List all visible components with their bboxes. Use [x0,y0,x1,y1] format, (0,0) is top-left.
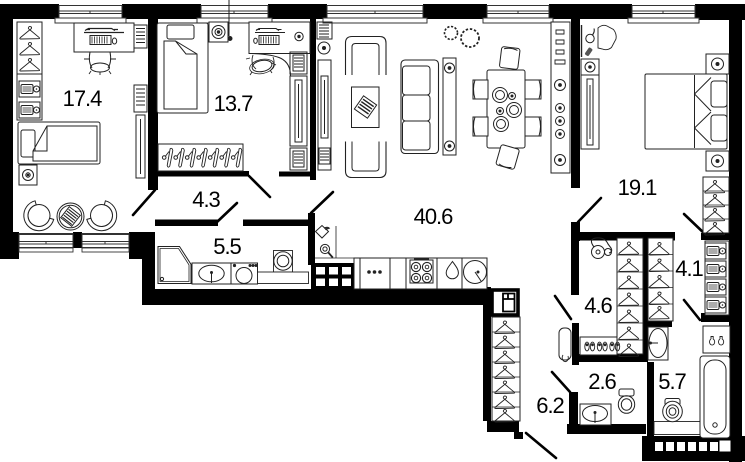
svg-text:4.3: 4.3 [192,187,220,212]
svg-text:17.4: 17.4 [63,86,103,111]
svg-text:40.6: 40.6 [414,204,454,229]
svg-text:5.5: 5.5 [213,234,241,259]
svg-text:2.6: 2.6 [588,369,616,394]
svg-text:6.2: 6.2 [536,393,564,418]
svg-text:13.7: 13.7 [214,91,254,116]
svg-text:19.1: 19.1 [618,175,658,200]
svg-text:5.7: 5.7 [658,369,686,394]
svg-text:4.1: 4.1 [675,256,703,281]
svg-text:4.6: 4.6 [584,293,612,318]
